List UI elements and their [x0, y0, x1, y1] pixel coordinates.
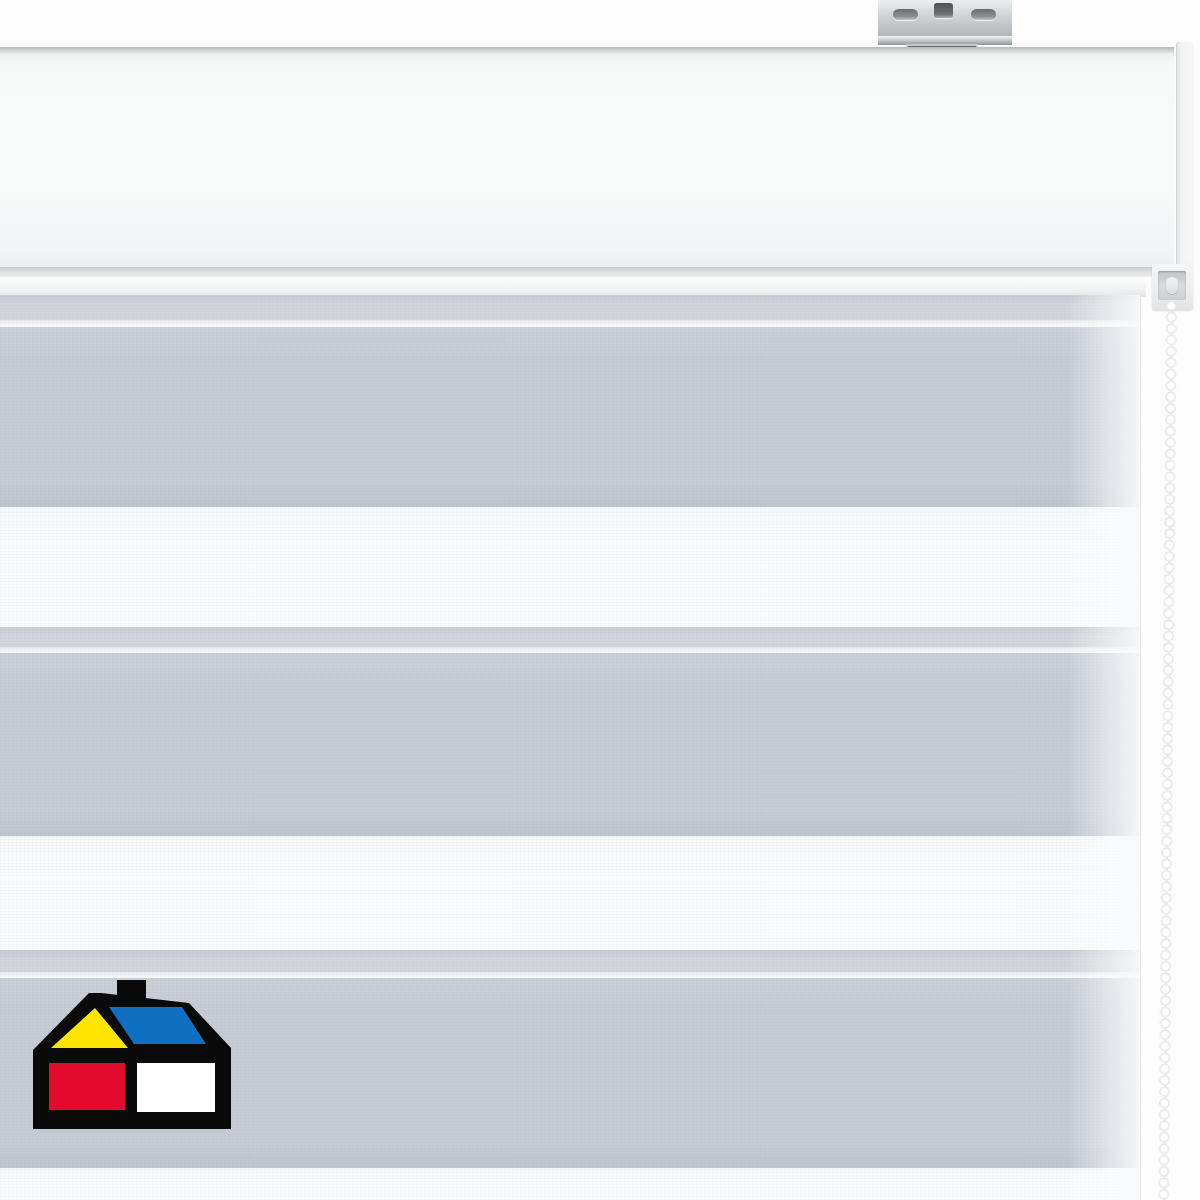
fabric-band-gray	[0, 653, 1141, 836]
fabric-band-gray-edge	[0, 950, 1141, 972]
bracket-screw-slot-left	[893, 9, 918, 20]
fabric-band-gray	[0, 327, 1141, 507]
homecenter-house-logo	[33, 978, 231, 1133]
cassette-headrail	[0, 47, 1174, 277]
fabric-band-white	[0, 1168, 1141, 1200]
bracket-center-hole	[934, 3, 953, 18]
headrail-end-cap	[1176, 42, 1194, 266]
headrail-bottom-groove	[0, 267, 1174, 277]
fabric-band-highlight	[0, 320, 1141, 327]
chain-pulley	[1166, 277, 1178, 294]
logo-red-square	[49, 1063, 125, 1110]
headrail-top-edge	[0, 47, 1174, 54]
logo-white-square	[137, 1063, 215, 1112]
bracket-plate	[878, 0, 1012, 36]
fabric-band-gray-edge	[0, 627, 1141, 647]
fabric-band-gray-edge	[0, 295, 1141, 320]
bead-chain	[1154, 300, 1181, 1200]
bracket-screw-slot-right	[971, 9, 996, 20]
fabric-band-white	[0, 507, 1141, 627]
headrail-bottom-lip	[0, 277, 1146, 297]
chain-guide-recess	[1158, 271, 1186, 300]
product-photo	[0, 0, 1200, 1200]
fabric-band-white	[0, 836, 1141, 950]
